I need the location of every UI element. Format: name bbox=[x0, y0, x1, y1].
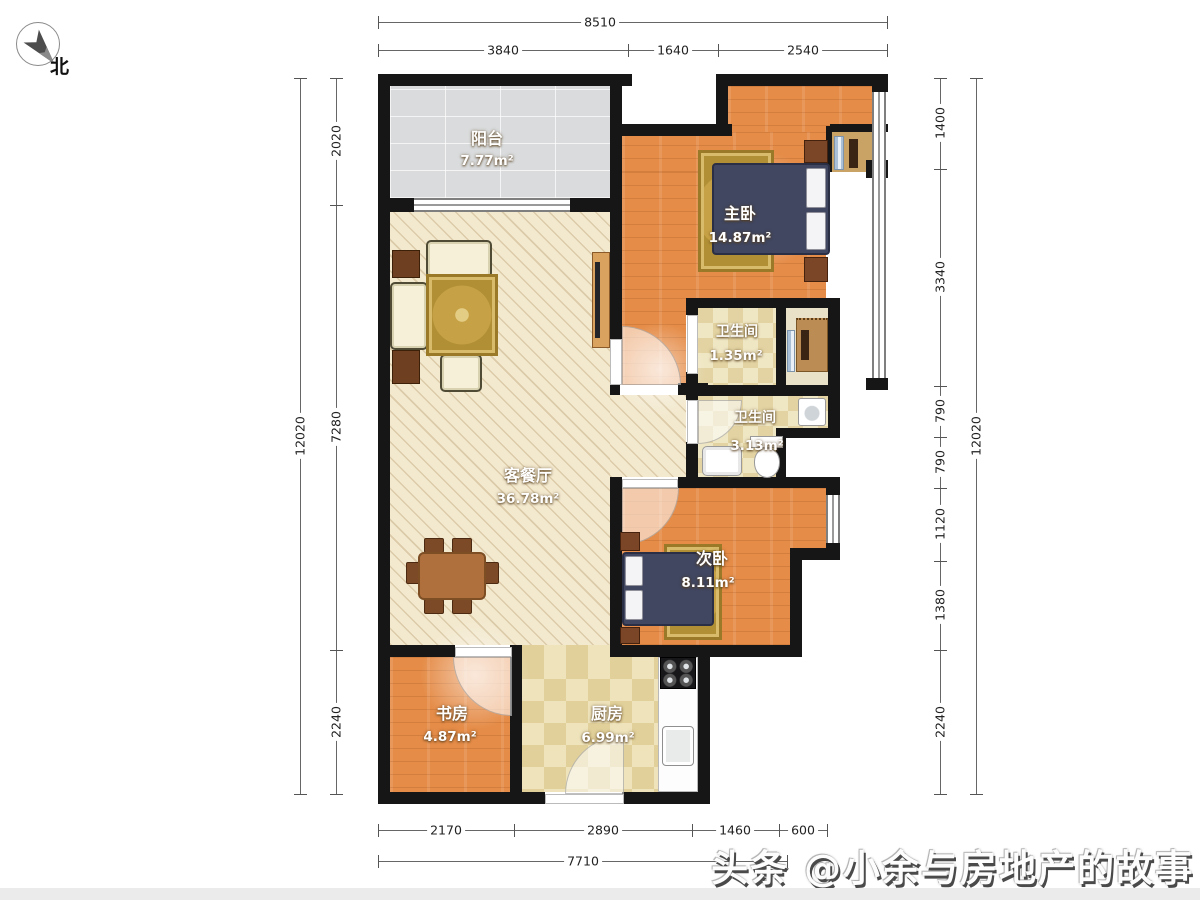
dim-label: 8510 bbox=[581, 15, 619, 30]
closet-sliding-door bbox=[834, 136, 844, 170]
room-area-bath2: 3.13m² bbox=[730, 438, 783, 454]
dim-tick bbox=[330, 794, 343, 795]
dim-tick bbox=[330, 78, 343, 79]
room-area-study: 4.87m² bbox=[423, 729, 476, 745]
watermark-text: 头条 @小余与房地产的故事 bbox=[711, 838, 1194, 892]
nightstand bbox=[804, 257, 828, 282]
dim-tick bbox=[294, 78, 307, 79]
dim-tick bbox=[934, 437, 947, 438]
side-table bbox=[392, 250, 420, 278]
stove bbox=[660, 657, 696, 689]
dim-tick bbox=[934, 386, 947, 387]
dining-chair bbox=[452, 538, 472, 553]
study-door-leaf bbox=[455, 647, 512, 657]
dim-tick bbox=[934, 794, 947, 795]
room-label-balcony: 阳台 bbox=[471, 125, 503, 149]
closet2-door bbox=[787, 330, 795, 372]
pillow bbox=[806, 168, 826, 208]
dim-label: 2540 bbox=[784, 43, 822, 58]
nightstand bbox=[620, 532, 640, 551]
dining-table bbox=[418, 552, 486, 600]
pillow bbox=[625, 590, 643, 620]
wardrobe-item bbox=[801, 330, 809, 360]
room-area-living: 36.78m² bbox=[497, 491, 560, 507]
wall bbox=[390, 198, 414, 212]
dim-label: 1380 bbox=[933, 586, 948, 624]
closet-item bbox=[849, 139, 858, 168]
dim-tick bbox=[378, 16, 379, 29]
dim-label: 2170 bbox=[427, 823, 465, 838]
living-rug bbox=[426, 274, 498, 356]
compass-needle-icon bbox=[8, 8, 82, 84]
sofa bbox=[390, 282, 428, 350]
wall bbox=[678, 477, 840, 488]
wall bbox=[872, 74, 888, 92]
wall bbox=[610, 124, 732, 136]
dim-tick bbox=[934, 650, 947, 651]
wall bbox=[826, 477, 840, 495]
dim-tick bbox=[718, 44, 719, 57]
dim-label: 2240 bbox=[329, 703, 344, 741]
dim-label: 3840 bbox=[484, 43, 522, 58]
dim-tick bbox=[378, 44, 379, 57]
dining-chair bbox=[424, 599, 444, 614]
dim-tick bbox=[970, 794, 983, 795]
dim-label: 2890 bbox=[584, 823, 622, 838]
bathroom2-door-leaf bbox=[687, 400, 698, 444]
dim-tick bbox=[887, 44, 888, 57]
dim-tick bbox=[970, 78, 983, 79]
second-bedroom-floor-ext bbox=[790, 488, 826, 548]
wall bbox=[686, 298, 840, 308]
dim-label: 790 bbox=[933, 396, 948, 426]
dim-tick bbox=[628, 44, 629, 57]
pillow bbox=[806, 212, 826, 250]
dim-label: 790 bbox=[933, 447, 948, 477]
second-bedroom-window bbox=[826, 495, 840, 543]
wall bbox=[378, 645, 455, 657]
side-table bbox=[392, 350, 420, 384]
dim-label: 2020 bbox=[329, 122, 344, 160]
wall bbox=[622, 792, 710, 804]
tv bbox=[595, 262, 600, 338]
room-label-bath1: 卫生间 bbox=[716, 321, 758, 341]
dim-label: 1460 bbox=[716, 823, 754, 838]
kitchen-sink bbox=[662, 726, 694, 766]
dining-chair bbox=[484, 562, 499, 584]
compass-north-label: 北 bbox=[50, 52, 69, 79]
wall bbox=[826, 543, 840, 560]
wall bbox=[828, 298, 840, 438]
dim-label: 1120 bbox=[933, 505, 948, 543]
room-area-master: 14.87m² bbox=[709, 230, 772, 246]
dim-label: 2240 bbox=[933, 703, 948, 741]
room-label-bath2: 卫生间 bbox=[734, 407, 776, 427]
dim-tick bbox=[330, 205, 343, 206]
bathroom1-door-leaf bbox=[687, 315, 698, 374]
bottom-bar bbox=[0, 888, 1200, 900]
dim-tick bbox=[934, 169, 947, 170]
dim-label: 12020 bbox=[969, 413, 984, 459]
room-area-bath1: 1.35m² bbox=[709, 348, 762, 364]
nightstand bbox=[620, 627, 640, 644]
wall bbox=[716, 74, 888, 86]
floorplan: 阳台 7.77m² 客餐厅 36.78m² 主卧 14.87m² 卫生间 1.3… bbox=[0, 0, 1200, 900]
dim-tick bbox=[779, 824, 780, 837]
right-window-run bbox=[872, 92, 886, 378]
dim-tick bbox=[692, 824, 693, 837]
balcony-window bbox=[414, 198, 570, 212]
wall bbox=[378, 74, 632, 86]
dim-tick bbox=[378, 855, 379, 868]
dim-tick bbox=[294, 794, 307, 795]
armchair bbox=[440, 354, 482, 392]
kitchen-pass-floor bbox=[522, 645, 610, 657]
room-area-kitchen: 6.99m² bbox=[581, 730, 634, 746]
nightstand bbox=[804, 140, 828, 163]
room-area-balcony: 7.77m² bbox=[460, 153, 513, 169]
dim-tick bbox=[827, 824, 828, 837]
dim-label: 1640 bbox=[654, 43, 692, 58]
dim-tick bbox=[887, 16, 888, 29]
dim-label: 600 bbox=[788, 823, 818, 838]
dim-line bbox=[378, 22, 888, 23]
dim-label: 7280 bbox=[329, 408, 344, 446]
room-label-living: 客餐厅 bbox=[504, 462, 552, 486]
wall bbox=[570, 198, 612, 212]
wall bbox=[378, 74, 390, 804]
dining-chair bbox=[424, 538, 444, 553]
room-label-second: 次卧 bbox=[696, 545, 728, 569]
kitchen-door-leaf bbox=[545, 794, 624, 804]
dim-tick bbox=[934, 561, 947, 562]
pillow bbox=[625, 556, 643, 586]
room-label-kitchen: 厨房 bbox=[591, 700, 623, 724]
dim-tick bbox=[514, 824, 515, 837]
loveseat bbox=[426, 240, 492, 278]
wall bbox=[698, 645, 710, 804]
wall bbox=[716, 86, 728, 130]
wall bbox=[790, 558, 802, 657]
dim-tick bbox=[330, 650, 343, 651]
compass: 北 bbox=[8, 8, 82, 84]
washing-machine bbox=[798, 398, 826, 426]
dim-tick bbox=[934, 488, 947, 489]
dim-tick bbox=[378, 824, 379, 837]
wall bbox=[866, 378, 888, 390]
wall bbox=[776, 298, 786, 390]
room-label-master: 主卧 bbox=[724, 200, 756, 224]
master-door-leaf bbox=[610, 339, 622, 385]
bathroom1-floor bbox=[698, 308, 776, 385]
wall bbox=[610, 645, 802, 657]
dim-label: 3340 bbox=[933, 258, 948, 296]
room-label-study: 书房 bbox=[436, 700, 468, 724]
dim-label: 12020 bbox=[293, 413, 308, 459]
second-bedroom-door-leaf bbox=[622, 479, 678, 488]
room-area-second: 8.11m² bbox=[681, 575, 734, 591]
dining-chair bbox=[452, 599, 472, 614]
dim-label: 1400 bbox=[933, 104, 948, 142]
dim-label: 7710 bbox=[564, 854, 602, 869]
wall bbox=[686, 385, 840, 396]
dim-tick bbox=[934, 78, 947, 79]
